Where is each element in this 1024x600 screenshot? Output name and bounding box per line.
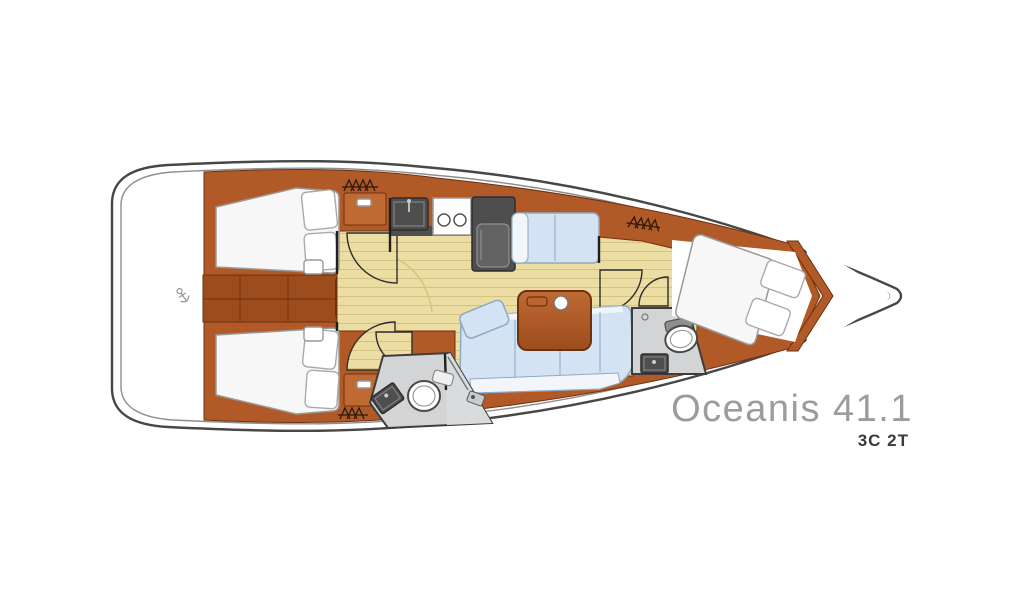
refrigerator xyxy=(472,197,515,271)
pillow xyxy=(301,189,338,230)
settee-backrest xyxy=(512,213,528,263)
table-cupholder xyxy=(554,296,568,310)
aft-port-cabinet xyxy=(344,193,386,225)
burner-icon xyxy=(438,214,450,226)
model-title: Oceanis 41.1 xyxy=(671,390,913,430)
port-settee xyxy=(512,213,599,263)
pillow xyxy=(305,370,340,409)
floorplan-svg xyxy=(0,0,1024,600)
cabinet-handle xyxy=(357,199,371,206)
model-variant: 3C 2T xyxy=(671,431,913,451)
title-block: Oceanis 41.1 3C 2T xyxy=(671,390,913,451)
cabinet-handle xyxy=(357,381,371,388)
head-sink xyxy=(641,354,668,373)
galley-sink xyxy=(390,198,428,230)
hatch-latch xyxy=(304,260,323,274)
boat-floorplan-page: Oceanis 41.1 3C 2T xyxy=(0,0,1024,600)
saloon-table xyxy=(518,291,591,350)
hatch-latch xyxy=(304,327,323,341)
burner-icon xyxy=(454,214,466,226)
stove xyxy=(433,198,471,235)
engine-compartment xyxy=(203,275,337,322)
